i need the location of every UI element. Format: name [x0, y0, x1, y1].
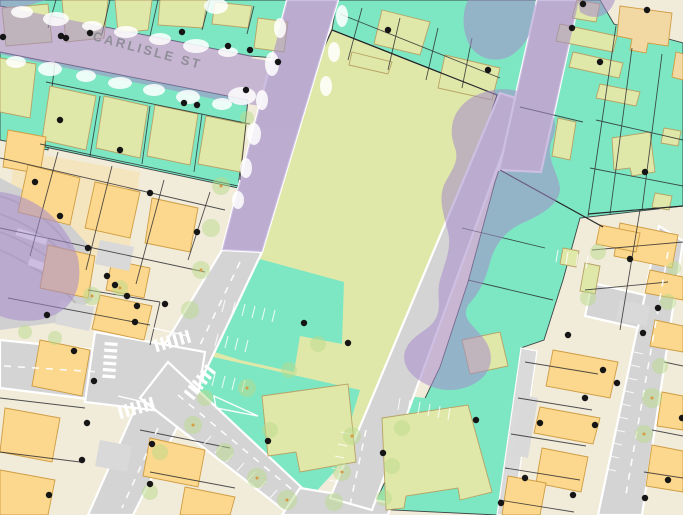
building: [198, 116, 246, 172]
building: [502, 476, 546, 515]
gis-map[interactable]: CARLISLE ST: [0, 0, 683, 515]
building: [158, 0, 207, 28]
building: [0, 408, 60, 462]
building: [32, 340, 90, 396]
building: [646, 445, 683, 492]
map-canvas[interactable]: CARLISLE ST: [0, 0, 683, 515]
building: [145, 198, 198, 252]
building: [85, 182, 140, 238]
building: [42, 86, 96, 150]
building: [147, 105, 198, 165]
building: [612, 132, 655, 176]
